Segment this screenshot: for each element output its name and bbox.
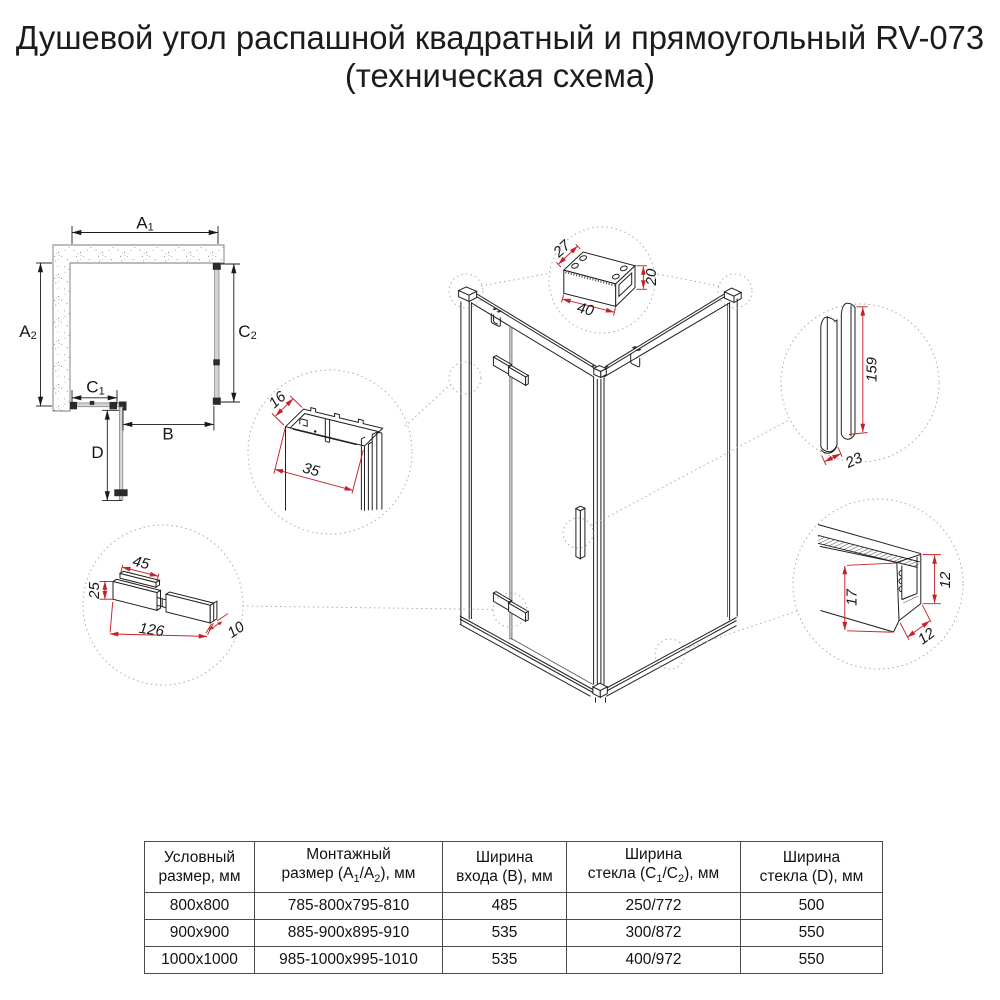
svg-text:23: 23	[842, 449, 866, 472]
svg-text:А1: А1	[136, 214, 153, 234]
svg-text:А2: А2	[19, 322, 36, 342]
svg-text:10: 10	[224, 618, 248, 642]
svg-text:27: 27	[549, 237, 574, 262]
svg-text:40: 40	[575, 299, 596, 320]
svg-text:D: D	[91, 443, 103, 462]
svg-text:25: 25	[86, 582, 103, 600]
svg-text:С1: С1	[86, 378, 104, 398]
svg-text:16: 16	[266, 388, 290, 412]
svg-text:159: 159	[864, 356, 881, 382]
svg-text:В: В	[162, 425, 173, 444]
svg-text:126: 126	[138, 620, 166, 640]
svg-text:20: 20	[643, 268, 660, 286]
svg-text:12: 12	[915, 624, 939, 648]
svg-text:С2: С2	[238, 322, 256, 342]
svg-text:12: 12	[937, 571, 954, 588]
svg-text:17: 17	[844, 589, 861, 606]
